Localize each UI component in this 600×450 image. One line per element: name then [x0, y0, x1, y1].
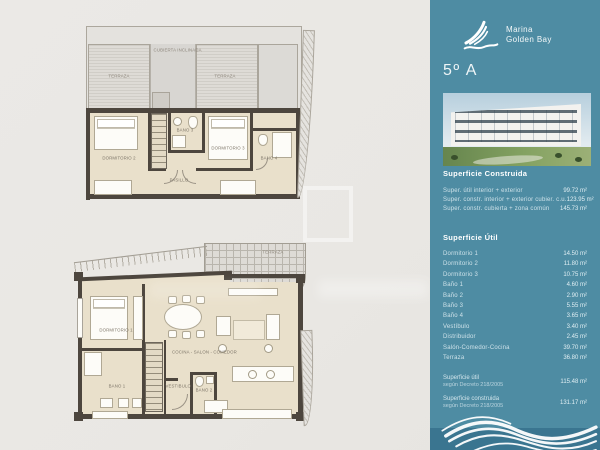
kitchen-hob — [266, 370, 275, 379]
total-label-line1: Superficie construida — [443, 396, 503, 402]
row-label: Baño 1 — [443, 282, 463, 288]
total-value: 131.17 m² — [560, 400, 587, 406]
shower-bano-3 — [172, 135, 186, 148]
bush — [575, 157, 582, 162]
window-bottom-left — [92, 411, 128, 419]
row-label: Baño 4 — [443, 313, 463, 319]
label-dormitorio-2: DORMITORIO 2 — [100, 157, 137, 161]
row-label: Salón-Comedor-Cocina — [443, 345, 510, 351]
area-row: Super. constr. interior + exterior cubie… — [443, 197, 587, 203]
brochure-page: CUBIERTA INCLINADA TERRAZA TERRAZA — [0, 0, 600, 450]
bush — [555, 153, 562, 158]
label-dormitorio-3: DORMITORIO 3 — [210, 147, 246, 151]
watermark-text-blur — [150, 282, 260, 298]
footer-wave-icon — [440, 408, 600, 450]
unit-title: 5º A — [443, 62, 478, 80]
bed-linen-line — [211, 128, 245, 129]
bidet-bano-1 — [132, 398, 142, 408]
row-value: 14.50 m² — [563, 251, 587, 257]
curved-facade-hatch-lower — [300, 330, 315, 426]
building-landscaping — [443, 147, 591, 166]
row-value: 99.72 m² — [563, 188, 587, 194]
construida-rows: Super. útil interior + exterior99.72 m²S… — [443, 188, 587, 216]
window-left-wall — [77, 298, 83, 338]
garden-path — [473, 154, 543, 166]
label-cocina-salon-comedor: COCINA - SALÓN - COMEDOR — [172, 351, 234, 355]
dining-chair — [182, 331, 191, 339]
bed-linen-line — [93, 308, 125, 309]
label-bano-1: BAÑO 1 — [106, 385, 128, 389]
row-value: 11.80 m² — [564, 261, 587, 267]
side-table-plant — [264, 344, 273, 353]
row-value: 39.70 m² — [563, 345, 587, 351]
row-label: Vestíbulo — [443, 324, 470, 330]
label-dormitorio-1: DORMITORIO 1 — [97, 329, 134, 333]
wall — [168, 110, 171, 152]
bush — [451, 155, 458, 160]
section-title-construida: Superficie Construida — [443, 169, 527, 178]
bed-pillow — [211, 119, 245, 128]
row-label: Baño 2 — [443, 293, 463, 299]
area-row: Baño 43.65 m² — [443, 313, 587, 319]
toilet-bano-4 — [258, 134, 268, 146]
area-row: Dormitorio 310.75 m² — [443, 272, 587, 278]
row-label: Super. útil interior + exterior — [443, 188, 523, 194]
row-value: 145.73 m² — [560, 206, 587, 212]
row-label: Super. constr. interior + exterior cubie… — [443, 197, 567, 203]
bed-pillow — [93, 299, 125, 308]
wall — [82, 348, 144, 351]
wall — [202, 110, 205, 152]
wall — [86, 108, 298, 113]
window-ledge-left — [94, 180, 132, 195]
label-terraza-left: TERRAZA — [101, 75, 137, 79]
upper-floor-plan: CUBIERTA INCLINADA TERRAZA TERRAZA — [0, 0, 430, 230]
corner-pier — [224, 272, 232, 280]
wall — [253, 128, 296, 131]
label-bano-2: BAÑO 2 — [195, 389, 214, 393]
label-terraza-lower: TERRAZA — [254, 251, 293, 255]
row-label: Super. constr. cubierta + zona común — [443, 206, 549, 212]
sink-bano-2 — [206, 376, 214, 384]
area-row: Baño 35.55 m² — [443, 303, 587, 309]
total-label: Superficie útil según Decreto 218/2005 — [443, 375, 503, 388]
brand-name-line1: Marina — [506, 25, 552, 35]
row-label: Terraza — [443, 355, 464, 361]
sofa-rug — [233, 320, 265, 340]
area-row: Distribuidor2.45 m² — [443, 334, 587, 340]
row-label: Dormitorio 2 — [443, 261, 478, 267]
total-util-row: Superficie útil según Decreto 218/2005 1… — [443, 375, 587, 388]
window-bottom-right — [222, 409, 292, 419]
row-label: Dormitorio 1 — [443, 251, 478, 257]
toilet-bano-2 — [195, 376, 204, 387]
wall — [86, 108, 90, 200]
brand-name: Marina Golden Bay — [506, 25, 552, 45]
lower-floor-plan: TERRAZA — [0, 230, 430, 450]
toilet-bano-1 — [118, 398, 129, 408]
total-value: 115.48 m² — [560, 379, 587, 385]
row-label: Dormitorio 3 — [443, 272, 478, 278]
label-pasillo: PASILLO — [165, 179, 192, 183]
label-cubierta-inclinada: CUBIERTA INCLINADA — [154, 49, 193, 53]
util-rows: Dormitorio 114.50 m²Dormitorio 211.80 m²… — [443, 251, 587, 365]
building-render-image — [443, 93, 591, 166]
kitchen-counter — [232, 366, 294, 382]
wall — [190, 372, 193, 416]
stairs-upper — [151, 113, 167, 169]
total-label-line2: según Decreto 218/2005 — [443, 382, 503, 388]
kitchen-sink — [248, 370, 257, 379]
building-facade — [451, 104, 581, 146]
row-value: 5.55 m² — [567, 303, 587, 309]
area-row: Vestíbulo3.40 m² — [443, 324, 587, 330]
row-value: 4.60 m² — [567, 282, 587, 288]
row-value: 2.90 m² — [567, 293, 587, 299]
bed-dormitorio-1 — [90, 296, 128, 340]
row-value: 36.80 m² — [563, 355, 587, 361]
wardrobe — [133, 296, 143, 340]
bed-dormitorio-2 — [94, 116, 138, 150]
armchair-right — [266, 314, 280, 340]
wall — [250, 110, 253, 170]
brand-name-line2: Golden Bay — [506, 35, 552, 45]
corner-pier — [74, 272, 83, 281]
area-row: Baño 22.90 m² — [443, 293, 587, 299]
corner-pier — [74, 412, 83, 421]
row-value: 2.45 m² — [567, 334, 587, 340]
row-label: Baño 3 — [443, 303, 463, 309]
watermark-logo-frame — [303, 186, 353, 242]
wall — [168, 150, 205, 153]
row-value: 3.40 m² — [567, 324, 587, 330]
roof-flat-right — [258, 44, 298, 110]
toilet-bano-3 — [188, 116, 198, 129]
shower-bano-1 — [84, 352, 102, 376]
dining-table — [164, 304, 202, 330]
bed-dormitorio-3 — [208, 116, 248, 160]
label-terraza-right: TERRAZA — [207, 75, 243, 79]
row-value: 10.75 m² — [563, 272, 587, 278]
area-row: Super. constr. cubierta + zona común145.… — [443, 206, 587, 212]
spec-sidebar: Marina Golden Bay 5º A Superficie Constr… — [430, 0, 600, 450]
stairs-lower — [145, 342, 163, 412]
row-label: Distribuidor — [443, 334, 476, 340]
watermark-text-blur — [318, 280, 428, 298]
area-row: Terraza36.80 m² — [443, 355, 587, 361]
wall — [196, 168, 253, 171]
wall — [164, 340, 166, 414]
label-vestibulo: VESTÍBULO — [165, 385, 188, 389]
label-bano-3: BAÑO 3 — [173, 129, 197, 133]
window-ledge-right — [220, 180, 256, 195]
wall — [190, 372, 217, 375]
dining-chair — [196, 330, 205, 338]
sink-bano-1 — [100, 398, 113, 408]
bed-pillow — [97, 119, 135, 128]
section-title-util: Superficie Útil — [443, 233, 498, 242]
corner-pier — [296, 274, 305, 283]
terrace-railing-curve — [74, 246, 208, 272]
area-row: Salón-Comedor-Cocina39.70 m² — [443, 345, 587, 351]
area-row: Super. útil interior + exterior99.72 m² — [443, 188, 587, 194]
area-row: Baño 14.60 m² — [443, 282, 587, 288]
armchair-left — [216, 316, 231, 336]
area-row: Dormitorio 211.80 m² — [443, 261, 587, 267]
label-bano-4: BAÑO 4 — [257, 157, 281, 161]
row-value: 3.65 m² — [567, 313, 587, 319]
wave-sail-icon — [460, 16, 500, 54]
total-label-line1: Superficie útil — [443, 375, 503, 381]
brand-logo: Marina Golden Bay — [460, 16, 552, 54]
wall — [228, 274, 302, 278]
bed-linen-line — [97, 128, 135, 129]
building-windows — [455, 110, 577, 142]
area-row: Dormitorio 114.50 m² — [443, 251, 587, 257]
wall — [166, 378, 178, 381]
row-value: 123.95 m² — [567, 197, 594, 203]
shower-bano-4 — [272, 132, 292, 158]
dining-chair — [168, 330, 177, 338]
sink-bano-3 — [173, 117, 182, 126]
